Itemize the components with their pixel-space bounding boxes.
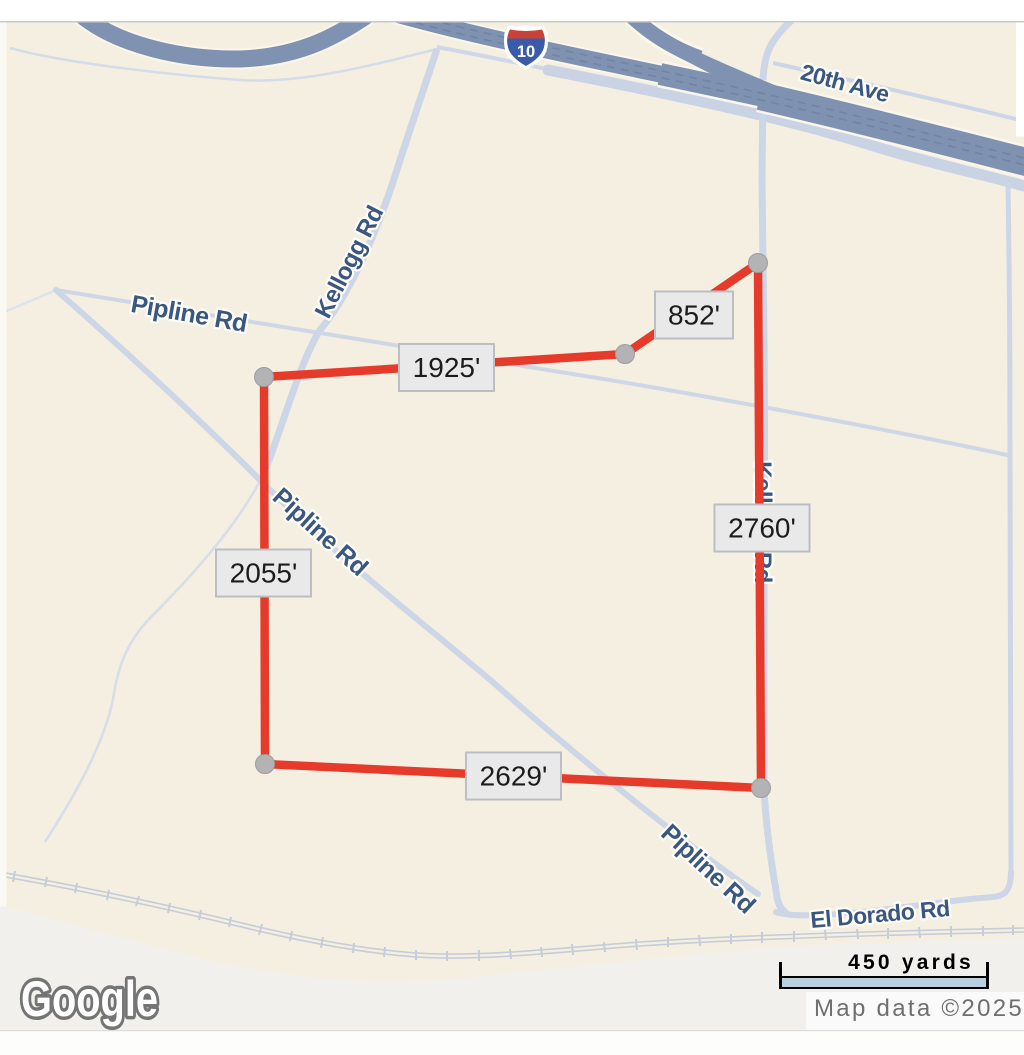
svg-text:852': 852' bbox=[668, 300, 720, 331]
svg-text:Map data ©2025: Map data ©2025 bbox=[814, 995, 1024, 1022]
svg-text:2055': 2055' bbox=[230, 558, 298, 589]
svg-text:10: 10 bbox=[517, 43, 535, 61]
svg-text:2629': 2629' bbox=[480, 761, 548, 792]
svg-text:Google: Google bbox=[21, 971, 158, 1027]
svg-text:2760': 2760' bbox=[728, 513, 796, 544]
svg-text:1925': 1925' bbox=[413, 352, 481, 383]
svg-text:450 yards: 450 yards bbox=[848, 951, 974, 974]
